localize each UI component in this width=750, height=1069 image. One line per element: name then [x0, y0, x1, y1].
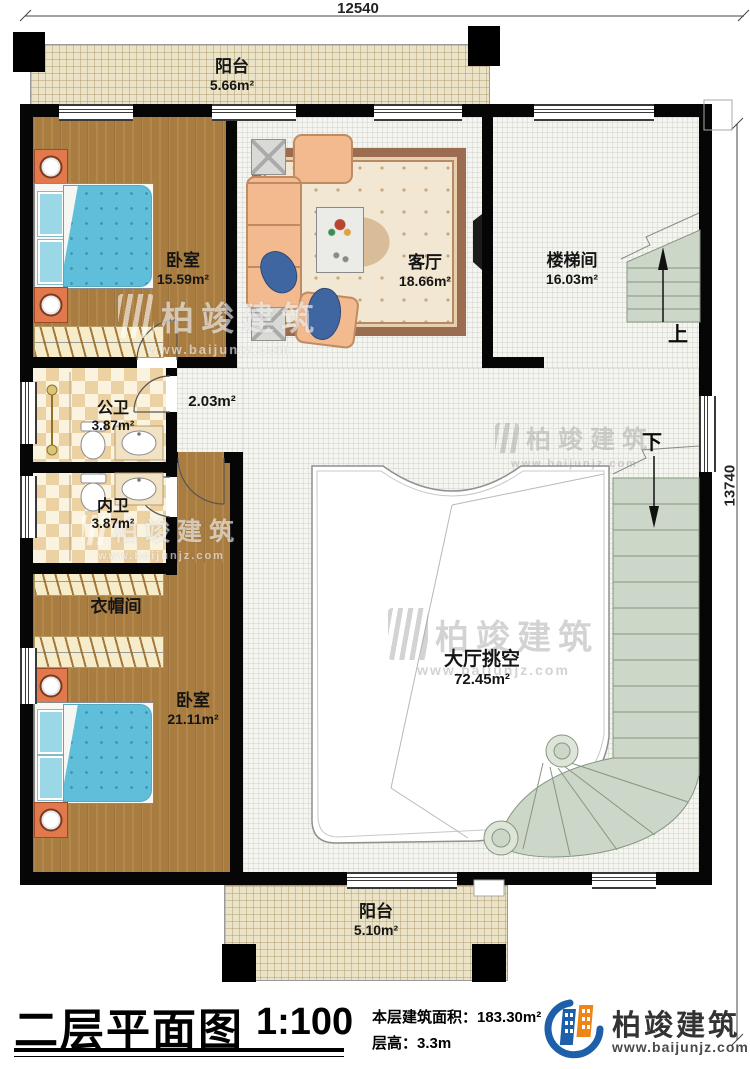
- room-label-bedroom1: 卧室15.59m²: [137, 252, 229, 288]
- pillow: [38, 756, 64, 800]
- wall: [296, 104, 374, 117]
- window: [20, 476, 37, 538]
- window: [699, 396, 716, 472]
- window: [534, 104, 654, 121]
- pillow: [38, 192, 64, 236]
- pillow: [38, 240, 64, 284]
- wall: [462, 104, 534, 117]
- room-label-inner-bath: 内卫3.87m²: [76, 498, 150, 532]
- wall: [20, 357, 137, 368]
- watermark-logo-icon: [118, 294, 154, 338]
- window: [20, 648, 37, 704]
- dimension-right: 13740: [722, 459, 739, 507]
- window: [374, 104, 462, 121]
- room-label-hall-void: 大厅挑空72.45m²: [418, 650, 546, 690]
- title-underline: [14, 1048, 344, 1052]
- plan-scale: 1:100: [256, 1001, 353, 1044]
- floor-height-line: 层高：3.3m: [372, 1032, 451, 1053]
- room-label-balcony-bottom: 阳台5.10m²: [330, 903, 422, 939]
- watermark-site: www.baijunjz.com: [118, 342, 321, 357]
- bed: [34, 183, 154, 289]
- column: [468, 26, 500, 66]
- duvet: [63, 704, 152, 802]
- room-label-public-bath: 公卫3.87m²: [76, 400, 150, 434]
- nightstand: [34, 668, 68, 704]
- armchair: [293, 134, 353, 184]
- brand-logo-icon: [540, 997, 606, 1063]
- window: [592, 872, 656, 889]
- stairs-down-label: 下: [642, 426, 662, 455]
- wall: [133, 104, 212, 117]
- room-label-cloakroom: 衣帽间: [64, 598, 168, 617]
- floor-plan-canvas: 柏竣建筑 www.baijunjz.com 柏竣建筑 www.baijunjz.…: [0, 0, 750, 1069]
- room-label-living: 客厅18.66m²: [383, 254, 467, 290]
- side-table: [251, 139, 286, 175]
- title-underline: [14, 1056, 344, 1057]
- pillow: [38, 710, 64, 754]
- wardrobe: [34, 636, 164, 668]
- watermark-site: www.baijunjz.com: [495, 458, 654, 470]
- wall: [166, 368, 177, 376]
- column: [13, 32, 45, 72]
- nightstand: [34, 149, 68, 185]
- wall: [166, 452, 178, 463]
- coffee-table: [316, 207, 364, 273]
- watermark-logo-icon: [495, 423, 519, 453]
- bed: [34, 702, 154, 804]
- stairs-up-label: 上: [668, 318, 688, 347]
- floor-area-line: 本层建筑面积：183.30m²: [372, 1006, 541, 1027]
- watermark: 柏竣建筑 www.baijunjz.com: [495, 420, 654, 470]
- wall: [177, 357, 237, 368]
- column: [222, 944, 256, 982]
- dimension-top: 12540: [330, 0, 386, 17]
- nightstand: [34, 802, 68, 838]
- room-label-stair-hall: 楼梯间16.03m²: [528, 252, 616, 288]
- wall: [224, 452, 243, 463]
- watermark: 柏竣建筑 www.baijunjz.com: [118, 292, 321, 357]
- wall: [699, 104, 712, 885]
- brand-name: 柏竣建筑: [612, 1002, 740, 1044]
- room-label-bedroom2: 卧室21.11m²: [143, 692, 243, 728]
- watermark-brand: 柏竣建筑: [526, 420, 654, 456]
- wall: [20, 563, 177, 574]
- room-label-balcony-top: 阳台5.66m²: [187, 58, 277, 94]
- watermark-site: www.baijunjz.com: [82, 550, 241, 562]
- window: [212, 104, 296, 121]
- nightstand: [34, 287, 68, 323]
- watermark-brand: 柏竣建筑: [161, 292, 321, 340]
- sliding-door: [347, 872, 457, 889]
- window: [59, 104, 133, 121]
- room-label-corridor: 2.03m²: [172, 393, 252, 412]
- wall: [20, 462, 177, 473]
- wall: [482, 104, 493, 368]
- wall: [482, 357, 544, 368]
- window: [20, 382, 37, 444]
- brand-website: www.baijunjz.com: [612, 1039, 749, 1055]
- column: [472, 944, 506, 982]
